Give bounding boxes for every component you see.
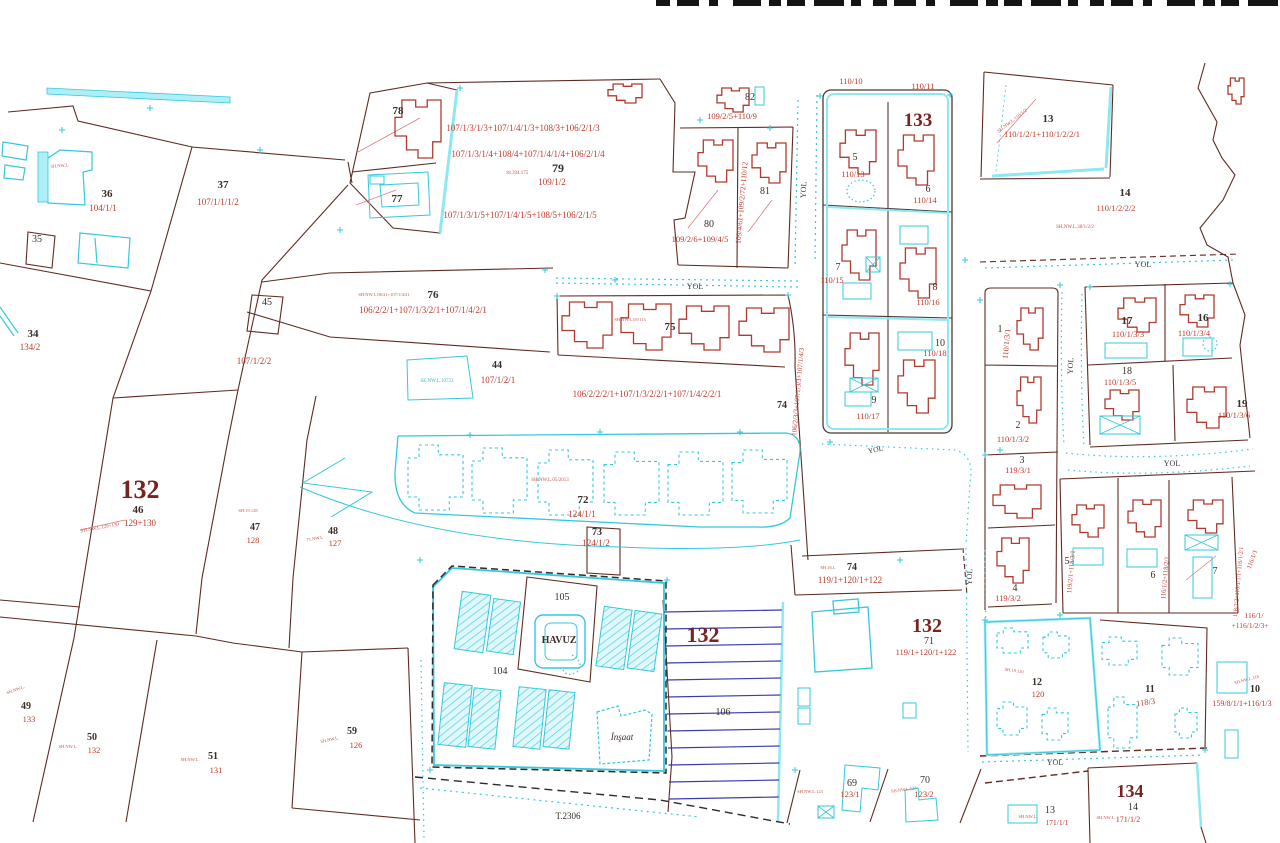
map-label-123-1: 123/1	[840, 789, 859, 799]
dashed-building	[732, 450, 787, 513]
dashed-building	[472, 448, 527, 513]
stripe-line	[670, 797, 779, 799]
map-label-110-1-3-3: 110/1/3/3	[1112, 329, 1144, 339]
plus-mark	[467, 432, 473, 438]
map-label-110-1-2-1-110-1-2-2-1: 110/1/2/1+110/1/2/2/1	[1004, 129, 1080, 139]
map-label-yol: YOL	[1066, 357, 1076, 374]
plus-mark	[792, 767, 798, 773]
cyan-features	[0, 85, 1253, 840]
map-label-106-2-2-1-107-1-3-2-1-107-1-4-2-1: 106/2/2/1+107/1/3/2/1+107/1/4/2/1	[359, 305, 487, 315]
hatched-building	[543, 690, 575, 749]
map-label-1: 1	[998, 324, 1003, 335]
map-label-14: 14	[1120, 187, 1132, 199]
dashed-building	[668, 452, 723, 515]
stripe-line	[666, 661, 782, 663]
hatched-building	[596, 606, 632, 669]
map-label-131: 131	[210, 765, 223, 775]
plus-mark	[554, 293, 560, 299]
map-label-132: 132	[88, 745, 101, 755]
map-label-126: 126	[350, 740, 363, 750]
map-label-119-1-120-1-122: 119/1+120/1+122	[896, 647, 957, 657]
map-label-sh-nw-l-38-1-2-2: SH.NW.L.38/1/2/2	[1056, 225, 1094, 230]
map-label-119-1-120-1-122: 119/1+120/1+122	[818, 575, 882, 585]
cyan-outbuilding	[1073, 548, 1103, 565]
map-label-50: 50	[87, 732, 97, 743]
map-label-124-1-1: 124/1/1	[568, 509, 596, 519]
map-label-19: 19	[1237, 398, 1249, 410]
map-label-37: 37	[218, 179, 230, 191]
cadastral-map-canvas: 36104/1/137107/1/1/1/23534134/27877107/1…	[0, 0, 1280, 843]
map-label-171-1-2: 171/1/2	[1116, 815, 1140, 824]
red-building	[898, 360, 935, 413]
map-label-120: 120	[1032, 689, 1045, 699]
map-label-2: 2	[1016, 420, 1021, 431]
crossed-boxes	[818, 257, 1218, 818]
map-label-133: 133	[23, 714, 36, 724]
map-label-8: 8	[933, 282, 938, 293]
map-label-107-1-3-1-3-107-1-4-1-3-108-3-106-2-1-3: 107/1/3/1/3+107/1/4/1/3+108/3+106/2/1/3	[446, 123, 600, 133]
map-label-129-130: 129+130	[124, 518, 157, 528]
red-building	[1187, 387, 1226, 428]
map-label-77: 77	[392, 193, 404, 205]
map-label-133: 133	[904, 110, 933, 131]
map-label-36: 36	[102, 188, 114, 200]
map-label-127: 127	[329, 538, 342, 548]
red-building	[562, 302, 612, 348]
crossed-box-diagonals	[850, 378, 878, 392]
map-label-46: 46	[133, 504, 145, 516]
crossed-box-diagonals	[1100, 416, 1140, 434]
map-label-128: 128	[247, 535, 260, 545]
red-building	[698, 140, 733, 182]
dashed-building	[1043, 632, 1069, 658]
red-building	[739, 308, 789, 352]
plus-mark	[427, 767, 433, 773]
map-label-44: 44	[492, 360, 502, 371]
map-label-34: 34	[28, 328, 40, 340]
cyan-outbuilding	[845, 392, 871, 406]
map-label-35: 35	[32, 234, 42, 245]
map-label-107-1-2-2: 107/1/2/2	[237, 356, 272, 366]
map-label-104: 104	[493, 666, 508, 677]
map-label-5: 5	[853, 152, 858, 163]
plus-mark	[737, 429, 743, 435]
map-label-72: 72	[578, 494, 590, 506]
map-label-78: 78	[393, 105, 405, 117]
map-label-se-nw-l-10723: SE.NW.L.10723	[420, 379, 454, 384]
map-label-16: 16	[1198, 312, 1210, 324]
map-label-12: 12	[1032, 677, 1042, 688]
map-label-107-1-2-1: 107/1/2/1	[481, 375, 516, 385]
dashed-building	[408, 445, 463, 510]
map-label-105: 105	[555, 592, 570, 603]
dashed-building	[1108, 697, 1137, 748]
map-label-sh-nw-l-05-2013: SH.NW.L.05/2013	[531, 478, 569, 483]
map-label-6: 6	[1151, 570, 1156, 581]
map-label-10: 10	[1250, 684, 1260, 695]
dashed-building	[1102, 637, 1137, 665]
plus-mark	[1057, 612, 1063, 618]
plus-mark	[147, 105, 153, 111]
plus-mark	[697, 117, 703, 123]
stripe-line	[666, 678, 781, 680]
map-label-110-11: 110/11	[912, 81, 935, 91]
map-label-sh-nw-l-: SH.NW.L.	[6, 684, 26, 695]
map-label-7: 7	[1213, 566, 1218, 577]
stripe-line	[667, 695, 781, 697]
stripe-line	[668, 729, 780, 731]
map-label-107-1-3-1-4-108-4-107-1-4-1-4-106-2-1-4: 107/1/3/1/4+108/4+107/1/4/1/4+106/2/1/4	[451, 149, 605, 159]
map-label-82: 82	[745, 92, 755, 103]
map-label-124-1-2: 124/1/2	[582, 538, 610, 548]
stripe-line	[664, 610, 782, 612]
map-label-9: 9	[872, 395, 877, 406]
cyan-outbuildings	[370, 87, 1247, 823]
map-label-132: 132	[121, 475, 160, 504]
map-label-107-1-3-1-5-107-1-4-1-5-108-5-106-2-1-5: 107/1/3/1/5+107/1/4/1/5+108/5+106/2/1/5	[443, 210, 597, 220]
map-label-116-1-: 116/1/	[1245, 611, 1265, 620]
map-label-80: 80	[704, 219, 714, 230]
map-label-sh-nw-l-: SH.NW.L.	[59, 744, 78, 749]
dashed-building	[1162, 638, 1198, 675]
red-building	[621, 304, 671, 350]
map-label-110-1-3-6: 110/1/3/6	[1218, 410, 1250, 420]
plus-mark	[897, 557, 903, 563]
stripe-line	[668, 746, 780, 748]
plus-mark	[1227, 281, 1233, 287]
map-label-sh-nw-l-06-21-107-1-4-21: SH.NW.L.06/21+107/1/4/21	[358, 292, 409, 297]
map-label-109-4-61-109-2-72-110-12: 109/4/61+109/2/72+110/12	[733, 161, 749, 244]
red-building	[900, 248, 936, 298]
map-label-49: 49	[21, 701, 31, 712]
map-label-134: 134	[1117, 781, 1144, 801]
map-label-118-3: 118/3	[1135, 696, 1155, 709]
map-label-74: 74	[777, 400, 787, 411]
red-building	[1072, 505, 1104, 537]
map-label-51: 51	[208, 751, 218, 762]
map-label-110-16: 110/16	[916, 297, 939, 307]
red-building	[840, 130, 876, 174]
map-label-109-1-2: 109/1/2	[538, 177, 566, 187]
map-label-48: 48	[328, 526, 338, 537]
map-label-110-1-2-2-2: 110/1/2/2/2	[1097, 203, 1136, 213]
map-label-134-2: 134/2	[20, 342, 41, 352]
map-label-107-1-1-1-2: 107/1/1/1/2	[197, 197, 239, 207]
red-building	[997, 538, 1029, 583]
map-label-110-18: 110/18	[923, 348, 946, 358]
map-label-sh-19-128: SH.19.128	[238, 508, 258, 513]
map-label-t-2306: T.2306	[555, 811, 581, 821]
map-label-14: 14	[1128, 802, 1138, 813]
cadastral-map: 36104/1/137107/1/1/1/23534134/27877107/1…	[0, 0, 1280, 843]
cyan-outbuilding	[903, 703, 916, 718]
map-label-59: 59	[347, 726, 357, 737]
map-label-159-8-1-1-116-1-3: 159/8/1/1+116/1/3	[1212, 699, 1271, 708]
map-label-sh-nw-l-05-113: SH.NW.L.05/113	[614, 317, 646, 322]
map-label-116-1-1: 116/1/1	[1246, 549, 1259, 570]
crossed-box-diagonals	[1185, 535, 1218, 550]
crossed-box-diagonals	[818, 806, 834, 818]
plus-mark	[962, 257, 968, 263]
plus-mark	[457, 85, 463, 91]
hatched-building	[438, 683, 472, 748]
hatched-building	[454, 591, 491, 652]
stripe-line	[665, 627, 782, 629]
map-label-69: 69	[847, 778, 857, 789]
map-label-7: 7	[836, 262, 841, 273]
dashed-building	[997, 702, 1027, 735]
plus-mark	[977, 297, 983, 303]
cyan-outbuilding	[900, 226, 928, 244]
plus-mark	[1057, 282, 1063, 288]
map-label-18-394-175: 18.394.175	[506, 171, 529, 176]
map-label-110-10: 110/10	[839, 76, 862, 86]
cyan-outbuilding	[843, 283, 871, 299]
cyan-outbuilding	[1193, 557, 1212, 598]
map-label-havuz: HAVUZ	[542, 635, 577, 646]
map-label-yol: YOL	[1135, 260, 1152, 269]
map-label-119-3-1: 119/3/1	[1005, 465, 1031, 475]
dashed-building	[1042, 708, 1068, 740]
map-label-yol: YOL	[1047, 758, 1064, 767]
dashed-building	[604, 452, 659, 515]
map-label-sh-nw-l-123: SH.NW.L.123	[797, 789, 823, 794]
stripe-line	[665, 644, 781, 646]
map-label-sh-nw-l-129-130: SH.NW.L.129+130	[80, 523, 120, 535]
map-label-106-2-3-3-107-1-3-3-107-1-4-3: 106/2/3/3+107/1/3/3+107/1/4/3	[790, 347, 806, 436]
red-building	[608, 84, 642, 103]
red-building	[679, 306, 729, 350]
map-label-yol: YOL	[867, 443, 884, 455]
red-building	[898, 135, 934, 185]
cyan-outbuilding	[1105, 343, 1147, 358]
stripe-line	[669, 780, 779, 782]
map-label-yol: YOL	[687, 282, 704, 291]
map-label-79: 79	[552, 161, 564, 175]
red-building	[1188, 500, 1223, 533]
cyan-outbuilding	[370, 176, 384, 184]
plus-mark	[817, 93, 823, 99]
map-label-110-15: 110/15	[820, 275, 843, 285]
plus-mark	[337, 227, 343, 233]
map-label-104-1-1: 104/1/1	[89, 203, 117, 213]
dashed-building	[997, 628, 1028, 653]
map-label-70: 70	[920, 775, 930, 786]
red-building	[993, 485, 1041, 518]
map-label-110-17: 110/17	[856, 411, 879, 421]
map-label-106-2-2-2-1-107-1-3-2-2-1-107-1-4-2-2-1: 106/2/2/2/1+107/1/3/2/2/1+107/1/4/2/2/1	[573, 389, 722, 399]
map-label-109-2-6-109-4-5: 109/2/6+109/4/5	[672, 234, 729, 244]
map-label-81: 81	[760, 186, 770, 197]
map-label-yol: YOL	[799, 181, 809, 198]
hatched-building	[486, 598, 520, 654]
map-label-73: 73	[592, 527, 602, 538]
crossed-box-diagonals	[866, 257, 880, 272]
map-label-sh-19-120: SH.19.120	[1004, 667, 1025, 675]
hatched-building	[627, 610, 662, 671]
plus-mark	[664, 577, 670, 583]
map-label-11: 11	[1145, 684, 1154, 695]
map-label-75: 75	[665, 321, 677, 333]
plus-mark	[997, 447, 1003, 453]
map-label-110-1-3-1: 110/1/3/1	[1001, 328, 1013, 359]
map-label-6: 6	[926, 184, 931, 195]
hatched-building	[468, 688, 501, 749]
map-labels: 36104/1/137107/1/1/1/23534134/27877107/1…	[6, 76, 1272, 827]
cyan-outbuilding	[755, 87, 764, 105]
map-label-sh-nw-l-: SH.NW.L.	[1097, 815, 1116, 820]
map-label-123-2: 123/2	[914, 789, 933, 799]
map-label-110-14: 110/14	[913, 195, 937, 205]
red-building	[752, 143, 786, 183]
map-label-13: 13	[1045, 805, 1055, 816]
red-building	[1017, 377, 1041, 423]
map-label-71: 71	[924, 636, 934, 647]
map-label-110-1-3-5: 110/1/3/5	[1104, 377, 1136, 387]
map-label-76: 76	[428, 289, 440, 301]
map-label-118-2-2-116-1-1-1-116-1-2-1: 118/2/2+116/1/1/1+116/1/2/1	[1233, 547, 1245, 618]
red-building	[845, 333, 879, 385]
map-label-110-1-3-2: 110/1/3/2	[997, 434, 1029, 444]
map-label-17: 17	[1122, 315, 1134, 327]
map-label-sh-16-l: SH.16.L	[820, 565, 836, 570]
map-label-sh-nw-l-: SH.NW.L.	[1019, 814, 1038, 819]
map-label-109-2-5-110-9: 109/2/5+110/9	[707, 111, 757, 121]
map-label--116-1-2-3-: +116/1/2/3+	[1232, 621, 1269, 630]
map-label-132: 132	[687, 622, 720, 647]
map-label-110-13: 110/13	[841, 169, 864, 179]
cyan-outbuilding	[798, 688, 810, 706]
plus-mark	[59, 127, 65, 133]
cyan-outbuilding	[1183, 338, 1212, 356]
dashed-building	[1175, 708, 1197, 738]
map-label-sh-nw-l-: SH.NW.L.	[50, 162, 69, 169]
map-label-sh-nw-l-: SH.NW.L.	[320, 735, 340, 744]
map-label-71-nw-l: 71.NW.L	[306, 535, 323, 543]
map-label-45: 45	[262, 297, 272, 308]
red-building	[1017, 308, 1043, 350]
red-building	[1228, 78, 1244, 104]
map-label-yol: YOL	[965, 568, 975, 585]
plus-mark	[1087, 284, 1093, 290]
stripe-line	[669, 763, 780, 765]
red-building	[1128, 500, 1161, 537]
map-label-47: 47	[250, 522, 260, 533]
map-label--n-aat: İnşaat	[610, 732, 634, 742]
map-label-18: 18	[1122, 366, 1132, 377]
plus-mark	[417, 557, 423, 563]
map-label-106: 106	[716, 707, 731, 718]
map-label-13: 13	[1043, 113, 1055, 125]
plus-mark	[982, 452, 988, 458]
map-label-119-3-2: 119/3/2	[995, 593, 1021, 603]
cyan-outbuilding	[1225, 730, 1238, 758]
plus-mark	[767, 125, 773, 131]
map-label-74: 74	[847, 562, 857, 573]
striped-parcel-hatching	[664, 610, 782, 799]
map-label-132: 132	[912, 615, 942, 637]
hatched-building	[513, 687, 546, 749]
cyan-outbuilding	[798, 708, 810, 724]
cyan-outbuilding	[1127, 549, 1157, 567]
map-label-171-1-1: 171/1/1	[1046, 818, 1069, 827]
map-label-yol: YOL	[1164, 459, 1181, 468]
plus-mark	[612, 277, 618, 283]
map-label-110-1-3-4: 110/1/3/4	[1178, 328, 1211, 338]
plus-mark	[785, 292, 791, 298]
map-label-sh-nw-l-: SH.NW.L.	[181, 757, 200, 762]
